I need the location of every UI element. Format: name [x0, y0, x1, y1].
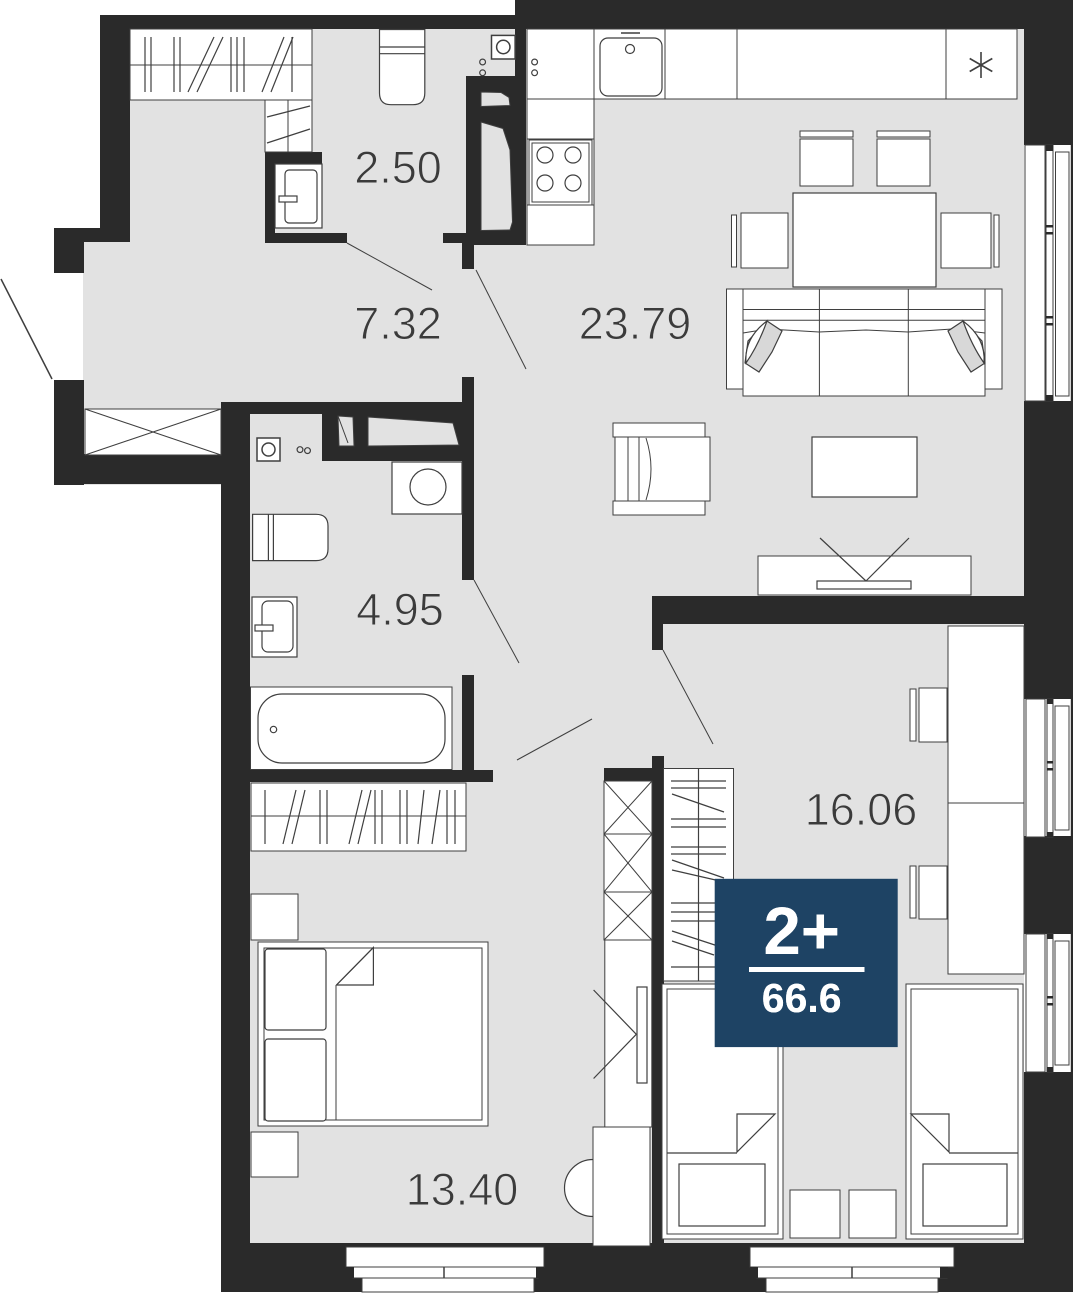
svg-text:2.50: 2.50 — [354, 142, 442, 193]
svg-text:2+: 2+ — [764, 894, 840, 969]
svg-text:4.95: 4.95 — [356, 584, 444, 635]
svg-text:23.79: 23.79 — [579, 298, 692, 349]
svg-text:13.40: 13.40 — [406, 1164, 519, 1215]
svg-text:16.06: 16.06 — [805, 784, 918, 835]
svg-text:66.6: 66.6 — [762, 975, 842, 1021]
svg-text:7.32: 7.32 — [354, 298, 442, 349]
